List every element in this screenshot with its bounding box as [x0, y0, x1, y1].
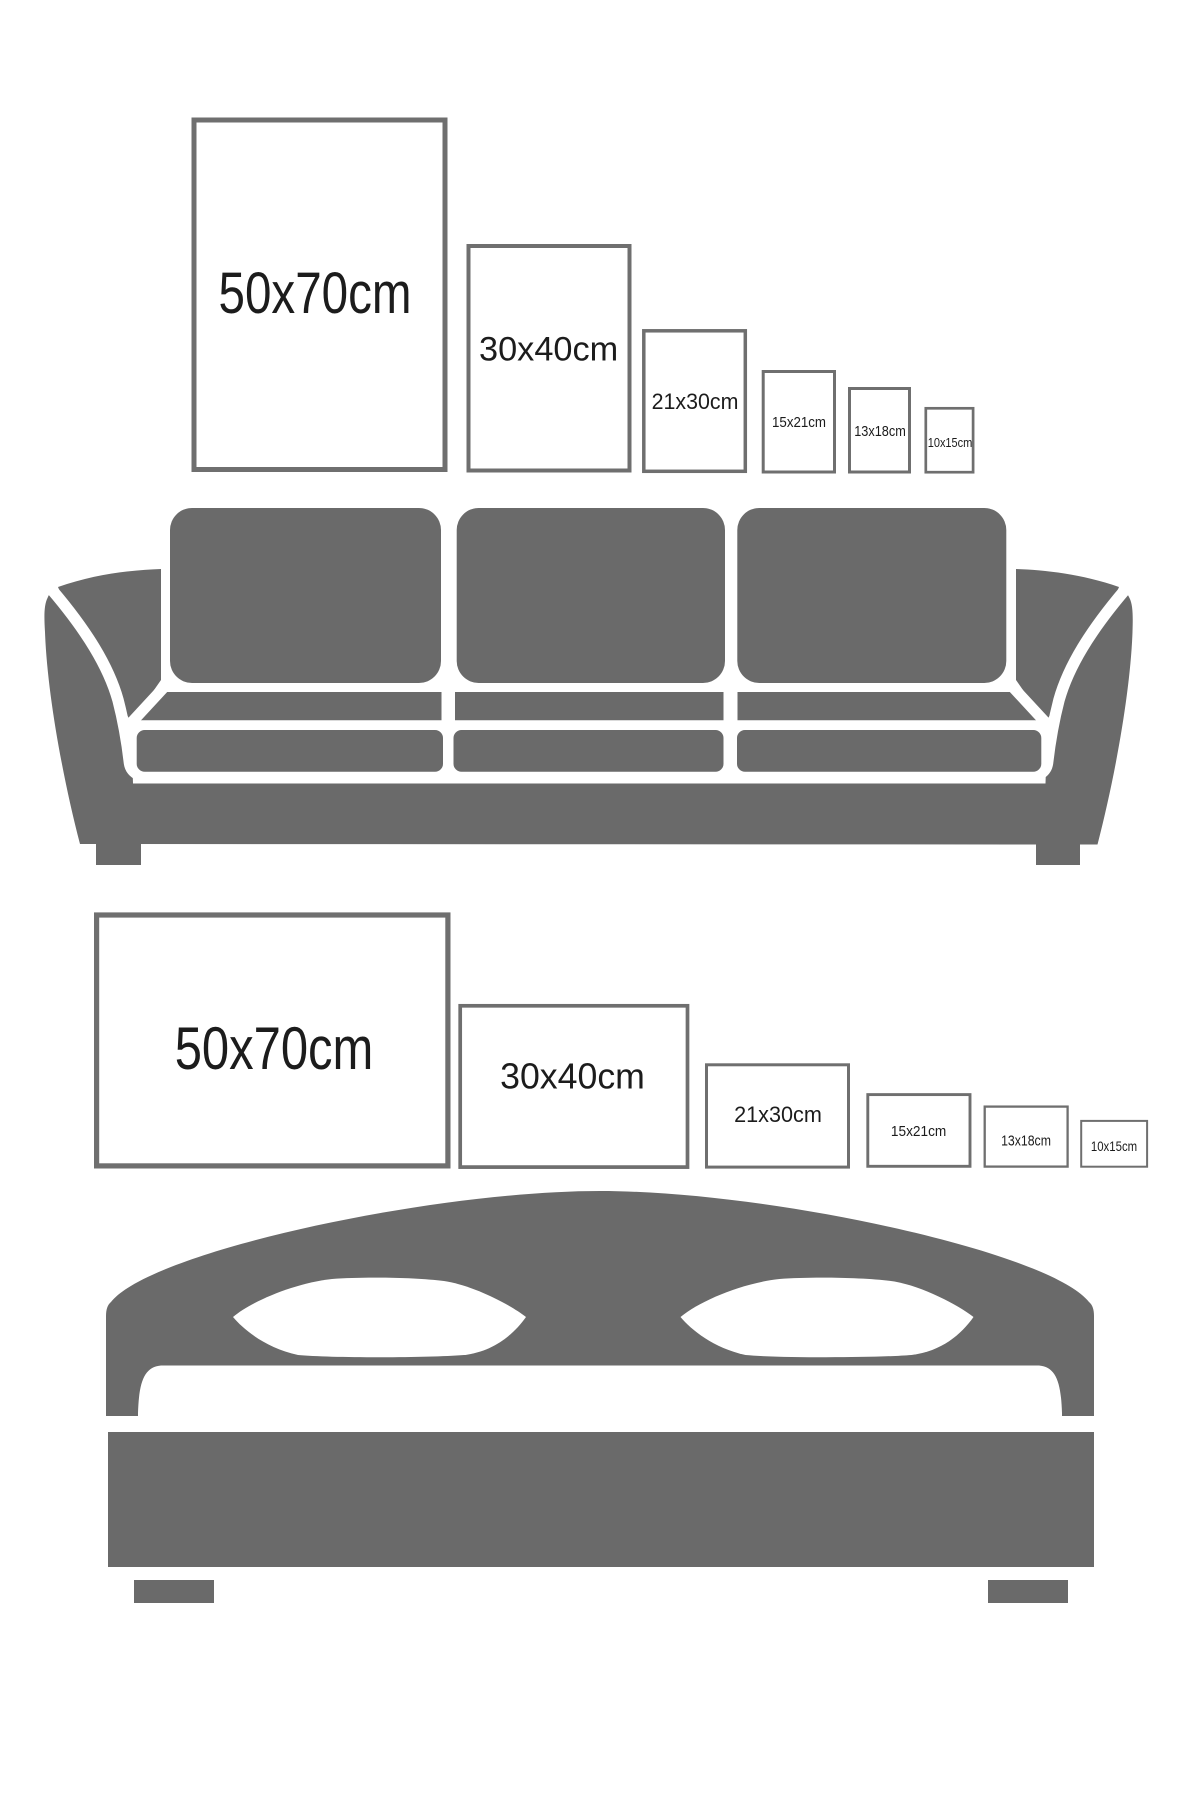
- svg-text:50x70cm: 50x70cm: [175, 1014, 374, 1082]
- svg-text:13x18cm: 13x18cm: [1001, 1132, 1051, 1148]
- svg-text:10x15cm: 10x15cm: [928, 435, 973, 450]
- svg-text:15x21cm: 15x21cm: [772, 413, 826, 430]
- svg-text:10x15cm: 10x15cm: [1091, 1138, 1137, 1154]
- svg-text:21x30cm: 21x30cm: [652, 389, 739, 415]
- svg-text:50x70cm: 50x70cm: [218, 261, 411, 326]
- svg-text:21x30cm: 21x30cm: [734, 1102, 822, 1127]
- svg-text:13x18cm: 13x18cm: [854, 423, 906, 439]
- svg-text:30x40cm: 30x40cm: [500, 1056, 645, 1096]
- svg-text:15x21cm: 15x21cm: [891, 1123, 946, 1140]
- svg-text:30x40cm: 30x40cm: [479, 331, 618, 369]
